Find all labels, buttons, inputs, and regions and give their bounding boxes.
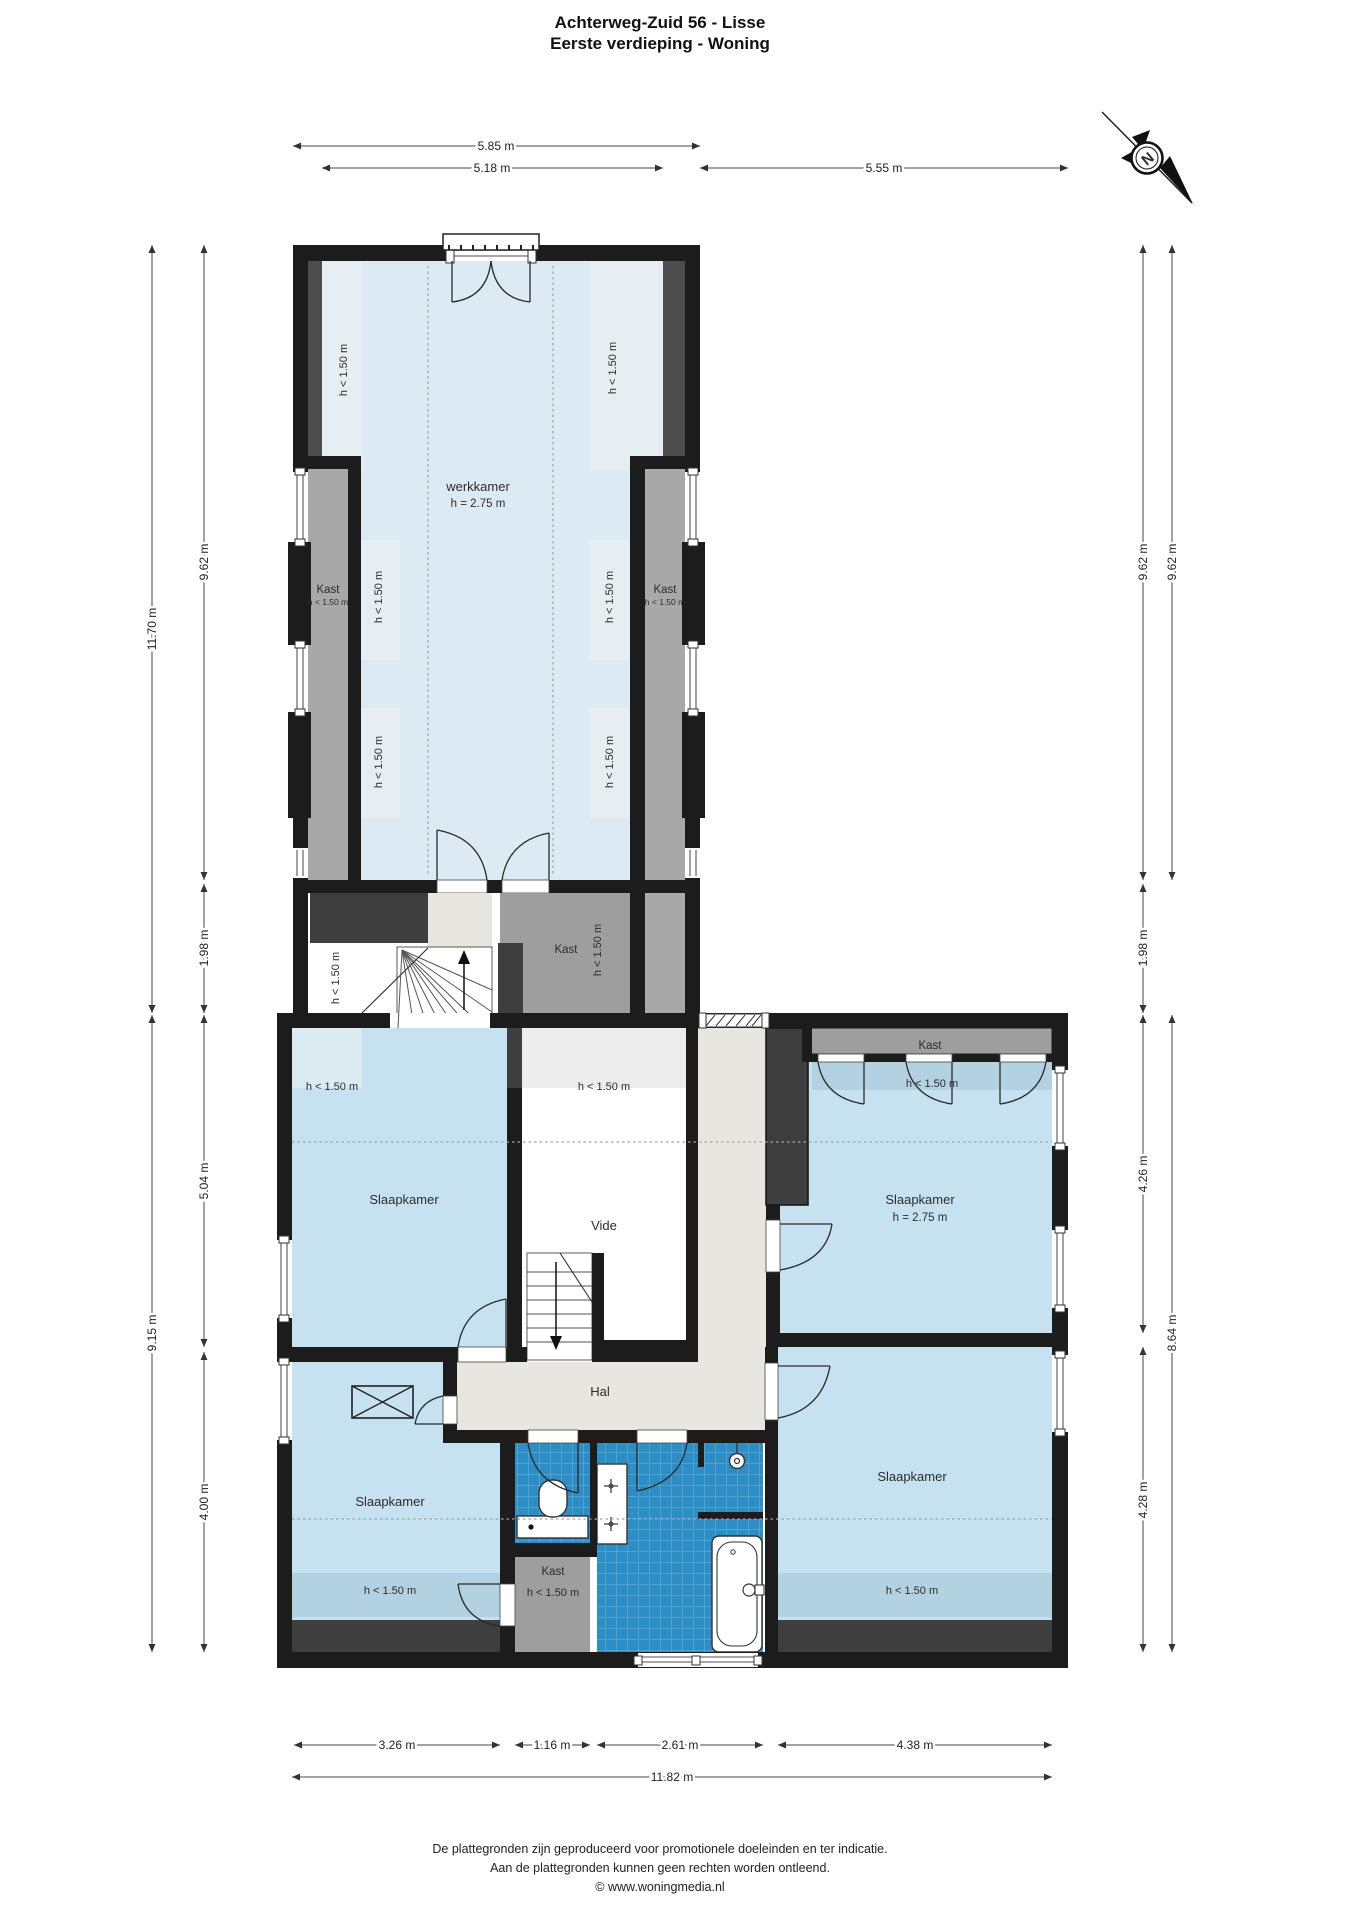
stairs-lower <box>527 1253 592 1360</box>
height-label: h < 1.50 m <box>578 1081 630 1093</box>
floorplan-svg: werkkamer h = 2.75 m h < 1.50 m h < 1.50… <box>0 0 1358 1920</box>
height-label: h < 1.50 m <box>886 1585 938 1597</box>
dim-bottom-116: 1.16 m <box>534 1738 571 1752</box>
height-label: h < 1.50 m <box>308 597 348 607</box>
height-label: h < 1.50 m <box>373 571 385 623</box>
dim-bottom-326: 3.26 m <box>379 1738 416 1752</box>
pillar <box>766 1028 808 1205</box>
werkkamer-wing: werkkamer h = 2.75 m h < 1.50 m h < 1.50… <box>288 234 705 1028</box>
dim-right-962a: 9.62 m <box>1136 544 1150 581</box>
dim-bottom-438: 4.38 m <box>897 1738 934 1752</box>
canopy <box>443 234 539 250</box>
washbasin-icon <box>597 1464 627 1544</box>
closet-label: Kast <box>541 1566 565 1578</box>
room-height-werkkamer: h = 2.75 m <box>451 498 506 510</box>
room-label-slaapkamer: Slaapkamer <box>885 1192 955 1207</box>
height-label: h < 1.50 m <box>527 1587 579 1599</box>
room-label-slaapkamer: Slaapkamer <box>369 1192 439 1207</box>
dim-left-504: 5.04 m <box>197 1163 211 1200</box>
closet-label: Kast <box>918 1040 942 1052</box>
height-label: h < 1.50 m <box>364 1585 416 1597</box>
footer-copyright: © www.woningmedia.nl <box>0 1878 1320 1897</box>
closet-label: Kast <box>316 584 340 596</box>
footer-line1: De plattegronden zijn geproduceerd voor … <box>0 1840 1320 1859</box>
compass-icon: N <box>1102 112 1193 204</box>
height-label: h < 1.50 m <box>604 736 616 788</box>
height-label: h < 1.50 m <box>592 924 604 976</box>
room-height-slaapkamer: h = 2.75 m <box>893 1212 948 1224</box>
dim-left-915: 9.15 m <box>145 1315 159 1352</box>
floorplan-page: Achterweg-Zuid 56 - Lisse Eerste verdiep… <box>0 0 1358 1920</box>
lower-block: h < 1.50 m h < 1.50 m Kast h < 1.50 m Sl… <box>276 950 1068 1668</box>
dim-top-518: 5.18 m <box>474 161 511 175</box>
height-label: h < 1.50 m <box>604 571 616 623</box>
room-label-slaapkamer: Slaapkamer <box>877 1469 947 1484</box>
dim-left-1170: 11.70 m <box>145 608 159 650</box>
dim-right-962b: 9.62 m <box>1165 544 1179 581</box>
dim-bottom-1182: 11.82 m <box>651 1770 693 1784</box>
dim-right-426: 4.26 m <box>1136 1156 1150 1193</box>
dim-left-962: 9.62 m <box>197 544 211 581</box>
dim-right-198: 1.98 m <box>1136 930 1150 967</box>
height-label: h < 1.50 m <box>306 1081 358 1093</box>
height-label: h < 1.50 m <box>645 597 685 607</box>
dim-top-555: 5.55 m <box>866 161 903 175</box>
room-label-hal: Hal <box>590 1384 610 1399</box>
roof-window-icon <box>352 1386 413 1418</box>
height-label: h < 1.50 m <box>338 344 350 396</box>
dim-left-400: 4.00 m <box>197 1484 211 1521</box>
height-label: h < 1.50 m <box>906 1078 958 1090</box>
dim-right-864: 8.64 m <box>1165 1315 1179 1352</box>
dim-left-198: 1.98 m <box>197 930 211 967</box>
closet-label: Kast <box>653 584 677 596</box>
bathtub-icon <box>712 1536 764 1652</box>
closet-label: Kast <box>554 944 578 956</box>
room-label-slaapkamer: Slaapkamer <box>355 1494 425 1509</box>
room-label-werkkamer: werkkamer <box>445 479 510 494</box>
height-label: h < 1.50 m <box>373 736 385 788</box>
room-label-vide: Vide <box>591 1218 617 1233</box>
footer-credits: De plattegronden zijn geproduceerd voor … <box>0 1840 1320 1897</box>
dim-bottom-261: 2.61 m <box>662 1738 699 1752</box>
height-label: h < 1.50 m <box>330 952 342 1004</box>
hatched-window-icon <box>699 1013 769 1028</box>
height-label: h < 1.50 m <box>607 342 619 394</box>
dim-top-585: 5.85 m <box>478 139 515 153</box>
footer-line2: Aan de plattegronden kunnen geen rechten… <box>0 1859 1320 1878</box>
dim-right-428: 4.28 m <box>1136 1482 1150 1519</box>
